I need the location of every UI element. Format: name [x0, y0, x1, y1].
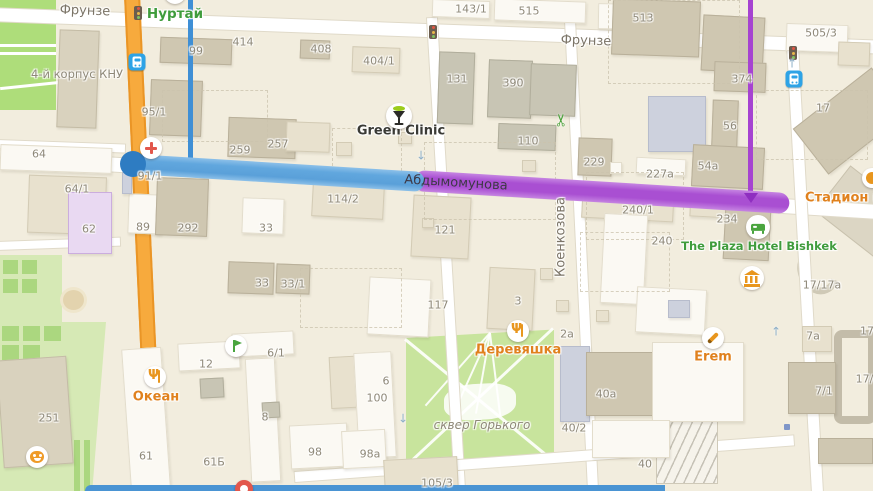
- building-number-label: 6: [383, 375, 390, 388]
- bus-stop-icon[interactable]: [129, 54, 146, 71]
- building: [596, 310, 609, 322]
- park-left-upper: [0, 255, 62, 323]
- traffic-light-icon: [134, 6, 142, 20]
- building-number-label: 6/1: [267, 347, 285, 360]
- poi-label[interactable]: Нуртай: [147, 6, 203, 22]
- poi-label[interactable]: The Plaza Hotel Bishkek: [681, 239, 837, 253]
- building: [838, 41, 871, 66]
- flag-icon[interactable]: [225, 335, 247, 357]
- bus-stop-icon[interactable]: [786, 71, 803, 88]
- building-number-label: 17: [816, 102, 830, 115]
- building-number-label: 89: [136, 221, 150, 234]
- building-number-label: 98: [308, 446, 322, 459]
- fountain: [60, 287, 87, 313]
- parcel-outline: [608, 0, 740, 84]
- street-name-label: Коенкозова: [554, 197, 569, 277]
- building-number-label: 240: [652, 235, 673, 248]
- oneway-arrow-icon: ↑: [787, 53, 797, 72]
- building-number-label: 408: [311, 43, 332, 56]
- building-number-label: 56: [723, 120, 737, 133]
- route-vertical-blue: [188, 0, 193, 168]
- building-number-label: 121: [435, 224, 456, 237]
- building-number-label: 105/3: [421, 477, 453, 490]
- building: [0, 144, 112, 174]
- building-number-label: 234: [717, 213, 738, 226]
- poi-label[interactable]: Океан: [133, 390, 179, 405]
- hotel-bed-icon[interactable]: [746, 215, 770, 239]
- green-clinic-icon[interactable]: [386, 103, 412, 129]
- area-label: 4-й корпус КНУ: [31, 67, 123, 81]
- building: [494, 0, 587, 24]
- building-number-label: 390: [503, 77, 524, 90]
- building: [540, 268, 553, 280]
- partial-poi-icon[interactable]: [164, 0, 186, 4]
- parcel-outline: [756, 90, 868, 160]
- restaurant-icon[interactable]: Ψ: [507, 320, 529, 342]
- poi-label[interactable]: Erem: [694, 350, 732, 365]
- building-number-label: 414: [233, 36, 254, 49]
- building: [556, 300, 569, 312]
- building-number-label: 64/1: [65, 183, 90, 196]
- parcel-outline: [300, 268, 402, 328]
- building-number-label: 513: [633, 12, 654, 25]
- area-label: сквер Горького: [434, 418, 531, 432]
- building-number-label: 62: [82, 223, 96, 236]
- building-number-label: 17: [860, 325, 873, 338]
- building-number-label: 143/1: [455, 3, 487, 16]
- building-number-label: 505/3: [805, 27, 837, 40]
- oneway-arrow-icon: ↓: [416, 145, 426, 164]
- building-number-label: 515: [519, 5, 540, 18]
- building-number-label: 7a: [806, 330, 820, 343]
- traffic-light-icon: [429, 25, 437, 39]
- building-number-label: 17/17a: [803, 279, 841, 292]
- building-number-label: 17/1: [856, 373, 873, 386]
- pencil-icon[interactable]: [702, 327, 724, 349]
- building: [592, 420, 670, 458]
- building-number-label: 404/1: [363, 55, 395, 68]
- partial-poi-icon[interactable]: [235, 480, 253, 491]
- hospital-cross-icon[interactable]: [140, 137, 162, 159]
- building-number-label: 99: [189, 45, 203, 58]
- building-number-label: 100: [367, 392, 388, 405]
- building-number-label: 12: [199, 358, 213, 371]
- theater-masks-icon[interactable]: [26, 446, 48, 468]
- building-number-label: 240/1: [622, 204, 654, 217]
- restaurant-icon[interactable]: Ψ: [144, 366, 166, 388]
- street-name-label: Фрунзе: [560, 33, 611, 50]
- building-number-label: 374: [732, 73, 753, 86]
- building: [199, 377, 224, 398]
- building-number-label: 95/1: [142, 106, 167, 119]
- building-number-label: 33: [255, 277, 269, 290]
- building: [818, 438, 873, 464]
- building-number-label: 229: [584, 156, 605, 169]
- building-number-label: 292: [178, 222, 199, 235]
- building-number-label: 98a: [360, 448, 381, 461]
- building: [437, 51, 475, 124]
- building-number-label: 257: [268, 138, 289, 151]
- museum-icon[interactable]: [740, 266, 764, 290]
- building-number-label: 61: [139, 450, 153, 463]
- entrance-dot-icon: [784, 424, 790, 430]
- building: [668, 300, 690, 318]
- building-number-label: 114/2: [327, 193, 359, 206]
- oneway-arrow-icon: ↓: [398, 408, 408, 427]
- oneway-arrow-icon: ↑: [771, 321, 781, 340]
- building-number-label: 251: [39, 412, 60, 425]
- building-number-label: 61Б: [203, 456, 225, 469]
- route-direction-arrow: [744, 193, 758, 203]
- building-number-label: 33/1: [281, 278, 306, 291]
- building-number-label: 33: [259, 222, 273, 235]
- building-number-label: 3: [515, 295, 522, 308]
- route-bottom-segment: [85, 485, 665, 491]
- building-number-label: 2a: [560, 328, 574, 341]
- building-number-label: 91/1: [138, 170, 163, 183]
- parcel-outline: [162, 90, 268, 142]
- building-number-label: 131: [447, 73, 468, 86]
- street-name-label: Фрунзе: [59, 3, 110, 20]
- route-vertical-purple: [748, 0, 753, 193]
- poi-label[interactable]: Деревяшка: [475, 343, 562, 358]
- partial-poi-icon[interactable]: [862, 168, 873, 188]
- building-number-label: 40: [638, 458, 652, 471]
- building-number-label: 40/2: [562, 422, 587, 435]
- building-number-label: 54a: [698, 160, 719, 173]
- building-number-label: 8: [262, 411, 269, 424]
- building-number-label: 259: [230, 144, 251, 157]
- building-number-label: 7/1: [815, 385, 833, 398]
- building-number-label: 110: [518, 135, 539, 148]
- building-number-label: 117: [428, 299, 449, 312]
- building: [285, 121, 330, 153]
- building-number-label: 227a: [646, 168, 674, 181]
- building-number-label: 40a: [596, 388, 617, 401]
- poi-label[interactable]: Стадион им. До: [805, 191, 873, 206]
- scissors-icon[interactable]: ✂: [555, 110, 569, 130]
- map-canvas[interactable]: ФрунзеФрунзеАбдымомуноваКоенкозова4-й ко…: [0, 0, 873, 491]
- building: [529, 63, 577, 117]
- building-number-label: 64: [32, 148, 46, 161]
